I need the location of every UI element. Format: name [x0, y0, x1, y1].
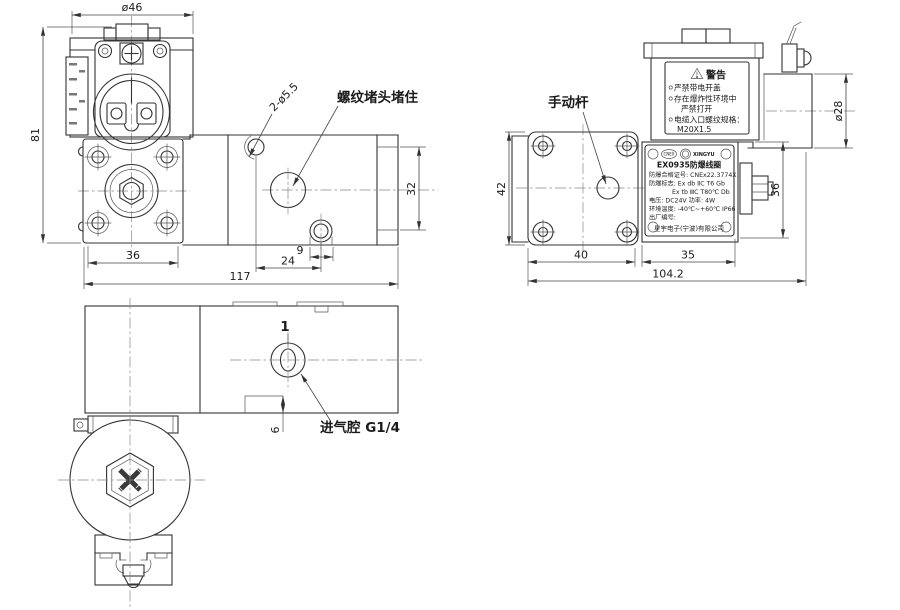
nameplate-title: EX0935防爆线圈: [657, 160, 721, 170]
drawing-canvas: ø46 81 36 117 32 9 24: [0, 0, 900, 610]
nameplate-line-serial: 出厂编号:: [649, 214, 676, 222]
dim-side-flange-width: 40: [574, 249, 588, 262]
warning-item-1: 严禁带电开盖: [674, 83, 721, 93]
cable-gland: [782, 22, 811, 72]
dim-flange-width: 36: [126, 249, 140, 262]
mount-face-strip: [512, 136, 528, 242]
dim-body-height: 32: [405, 182, 418, 196]
dim-step-height: 6: [269, 427, 282, 434]
side-flange: [528, 132, 639, 245]
nameplate-line-mark1: 防爆标志: Ex db ⅡC T6 Gb: [649, 180, 725, 188]
dim-mount-holes: 2-ø5.5: [267, 80, 301, 114]
port-number-label: 1: [280, 319, 289, 335]
warning-title: 警告: [705, 69, 726, 82]
technical-drawing: ø46 81 36 117 32 9 24: [0, 0, 900, 610]
nameplate-line-cert: 防爆合格证号: CNEx22.3774X: [649, 171, 737, 179]
cnex-logo-text: CNEX: [663, 152, 674, 157]
side-view: 手动杆: [495, 22, 856, 286]
inlet-label: 进气腔 G1/4: [320, 419, 400, 436]
nameplate-company: 星宇电子(宁波)有限公司: [654, 224, 724, 233]
front-bolt-holes: [85, 144, 180, 236]
dim-side-body-height: 36: [769, 183, 782, 197]
manual-lever-callout: 手动杆: [548, 94, 606, 184]
coil-bracket: [95, 535, 172, 588]
inlet-callout: 进气腔 G1/4: [301, 374, 400, 436]
coil-side-sticker: [66, 57, 88, 135]
bottom-dimensions: 6: [269, 396, 283, 434]
thread-plug-callout: 螺纹堵头堵住: [293, 89, 418, 186]
dim-hole-span: 24: [281, 255, 295, 268]
nameplate-line-temp: 环境温度: -40℃~+60℃ IP66: [649, 205, 736, 213]
warning-item-5: M20X1.5: [677, 125, 711, 134]
dim-total-height: 81: [29, 128, 42, 142]
brand-logo-text: XINGYU: [693, 152, 715, 158]
dim-side-flange-height: 42: [495, 182, 508, 196]
dim-side-body-width: 35: [681, 249, 695, 262]
front-view: ø46 81 36 117 32 9 24: [29, 1, 438, 289]
nameplate-line-mark2: Ex tb ⅢC T80℃ Db: [672, 189, 730, 196]
side-bolt-holes: [531, 134, 639, 244]
valve-body-front: [183, 135, 398, 249]
manual-lever-label: 手动杆: [548, 94, 589, 111]
bottom-view: 1 进气腔 G1/4 6: [58, 298, 422, 608]
dim-side-total-width: 104.2: [652, 268, 684, 281]
warning-plate: 警告 严禁带电开盖 存在爆炸性环境中 严禁打开 电缆入口螺纹规格： M20X1.…: [665, 62, 749, 134]
valve-body-bottom: [85, 302, 398, 413]
dim-notch-width: 9: [297, 244, 304, 257]
warning-item-3: 严禁打开: [681, 104, 712, 114]
dim-coil-outer-diameter: ø28: [832, 101, 845, 122]
dim-coil-diameter: ø46: [122, 1, 143, 14]
warning-item-2: 存在爆炸性环境中: [674, 94, 737, 104]
coil-bottom: [58, 298, 205, 608]
warning-item-4: 电缆入口螺纹规格：: [674, 115, 744, 125]
nameplate: CNEX XINGYU EX0935防爆线圈 防爆合格证号: CNEx22.37…: [645, 145, 737, 236]
thread-plug-label: 螺纹堵头堵住: [337, 89, 418, 106]
nameplate-line-power: 电压: DC24V 功率: 4W: [649, 197, 715, 205]
dim-total-width: 117: [230, 270, 251, 283]
